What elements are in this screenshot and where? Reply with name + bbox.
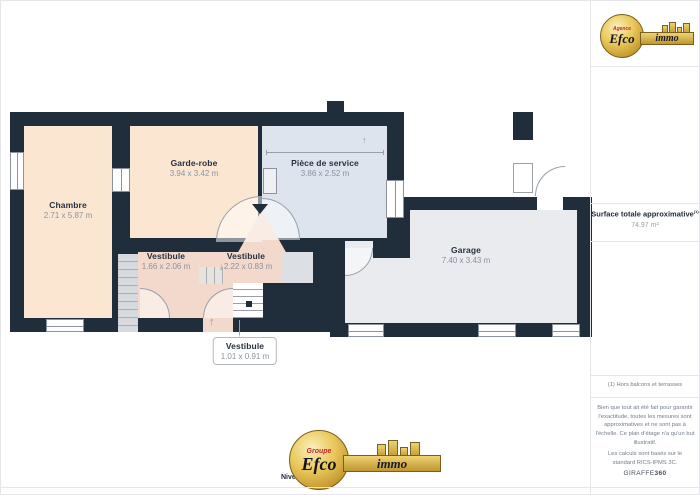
room-label-chambre: Chambre 2.71 x 5.87 m (44, 200, 92, 220)
sidebar-line-2 (590, 203, 700, 204)
disclaimer-text: Bien que tout ait été fait pour garantir… (591, 404, 699, 447)
surface-total-value: 74.97 m² (591, 222, 699, 229)
exterior-step (513, 163, 533, 193)
window-garage-bottom-1 (348, 324, 384, 337)
sidebar-line-5 (590, 397, 700, 398)
room-name: Vestibule (142, 251, 190, 261)
room-dims-text: 2.22 x 0.83 m (224, 262, 272, 271)
wall-chimney-stub (327, 101, 344, 113)
floor-gray-pad (282, 252, 313, 283)
room-label-garage: Garage 7.40 x 3.43 m (442, 245, 490, 265)
callout-leader-line (239, 320, 240, 337)
logo-key-head: Agence Efco (600, 14, 644, 58)
room-dims: 1.66 x 2.06 m (142, 262, 190, 271)
room-dims: 7.40 x 3.43 m (442, 256, 490, 265)
room-dims: 3.86 x 2.52 m (291, 169, 359, 178)
room-name: Garage (442, 245, 490, 255)
window-chambre-left (10, 152, 24, 190)
boiler-appliance (263, 168, 277, 194)
logo-key-bits (377, 436, 420, 456)
room-name: Garde-robe (170, 158, 218, 168)
logo-brand-name: Efco (609, 32, 634, 45)
surface-label-text: Surface totale approximative (591, 210, 694, 219)
room-label-vestibule-mid: Vestibule ⤓2.22 x 0.83 m (220, 251, 273, 272)
entrance-arrow-icon: ↑ (209, 317, 215, 328)
footnote-text: (1) Hors balcons et terrasses (591, 381, 699, 390)
room-label-piece-service: Pièce de service 3.86 x 2.52 m (291, 158, 359, 178)
giraffe-360-text: 360 (654, 470, 666, 477)
logo-suffix-label: immo (655, 34, 678, 44)
room-dims: ⤓2.22 x 0.83 m (220, 262, 273, 272)
sidebar-line-3 (590, 241, 700, 242)
vestibule-callout: Vestibule 1.01 x 0.91 m (213, 337, 277, 365)
room-label-vestibule-left: Vestibule 1.66 x 2.06 m (142, 251, 190, 271)
logo-suffix-label: immo (377, 457, 407, 470)
room-name: Vestibule (221, 341, 269, 351)
floor-chambre (24, 126, 112, 318)
logo-key-shaft: immo (640, 32, 694, 45)
floorplan-canvas: ↑ ↑ Chambre 2.71 x 5.87 m Garde-robe 3.9… (0, 0, 590, 495)
measure-line (266, 152, 384, 153)
room-dims: 2.71 x 5.87 m (44, 211, 92, 220)
door-arc-exterior (535, 166, 565, 196)
floorplan-page: ↑ ↑ Chambre 2.71 x 5.87 m Garde-robe 3.9… (0, 0, 700, 495)
window-garage-bottom-3 (552, 324, 580, 337)
window-garage-bottom-2 (478, 324, 516, 337)
door-gap-exterior (537, 197, 563, 210)
stairs-down-icon: ⤓ (220, 264, 223, 271)
footer-rule (0, 487, 700, 488)
logo-key-head: Groupe Efco (289, 430, 349, 490)
logo-key-shaft: immo (343, 455, 441, 472)
room-dims: 3.94 x 3.42 m (170, 169, 218, 178)
sidebar-line-4 (590, 375, 700, 376)
height-arrow-icon: ↑ (362, 136, 367, 145)
window-chambre-garde (112, 168, 130, 192)
giraffe-text: GIRAFFE (623, 470, 654, 477)
logo-brand-name: Efco (302, 455, 337, 473)
sidebar-line-1 (590, 66, 700, 67)
room-label-garde-robe: Garde-robe 3.94 x 3.42 m (170, 158, 218, 178)
efco-immo-logo-footer: Groupe Efco immo (289, 428, 449, 490)
room-name: Pièce de service (291, 158, 359, 168)
logo-key-bits (662, 19, 690, 33)
room-name: Vestibule (220, 251, 273, 261)
surface-total-label: Surface totale approximative(1) (591, 209, 699, 219)
giraffe360-logo: GIRAFFE360 (591, 470, 699, 477)
stairs-side-strip (118, 254, 138, 332)
wall-pillar (513, 112, 533, 140)
window-chambre-bottom (46, 319, 84, 332)
stairs-post (246, 301, 252, 307)
standard-text: Les calculs sont basés sur le standard R… (591, 450, 699, 467)
room-dims: 1.01 x 0.91 m (221, 352, 269, 361)
footnote-marker: (1) (694, 209, 699, 214)
window-piece-right (386, 180, 404, 218)
room-name: Chambre (44, 200, 92, 210)
efco-immo-logo-header: Agence Efco immo (600, 10, 696, 60)
floor-garage-main (410, 210, 577, 323)
